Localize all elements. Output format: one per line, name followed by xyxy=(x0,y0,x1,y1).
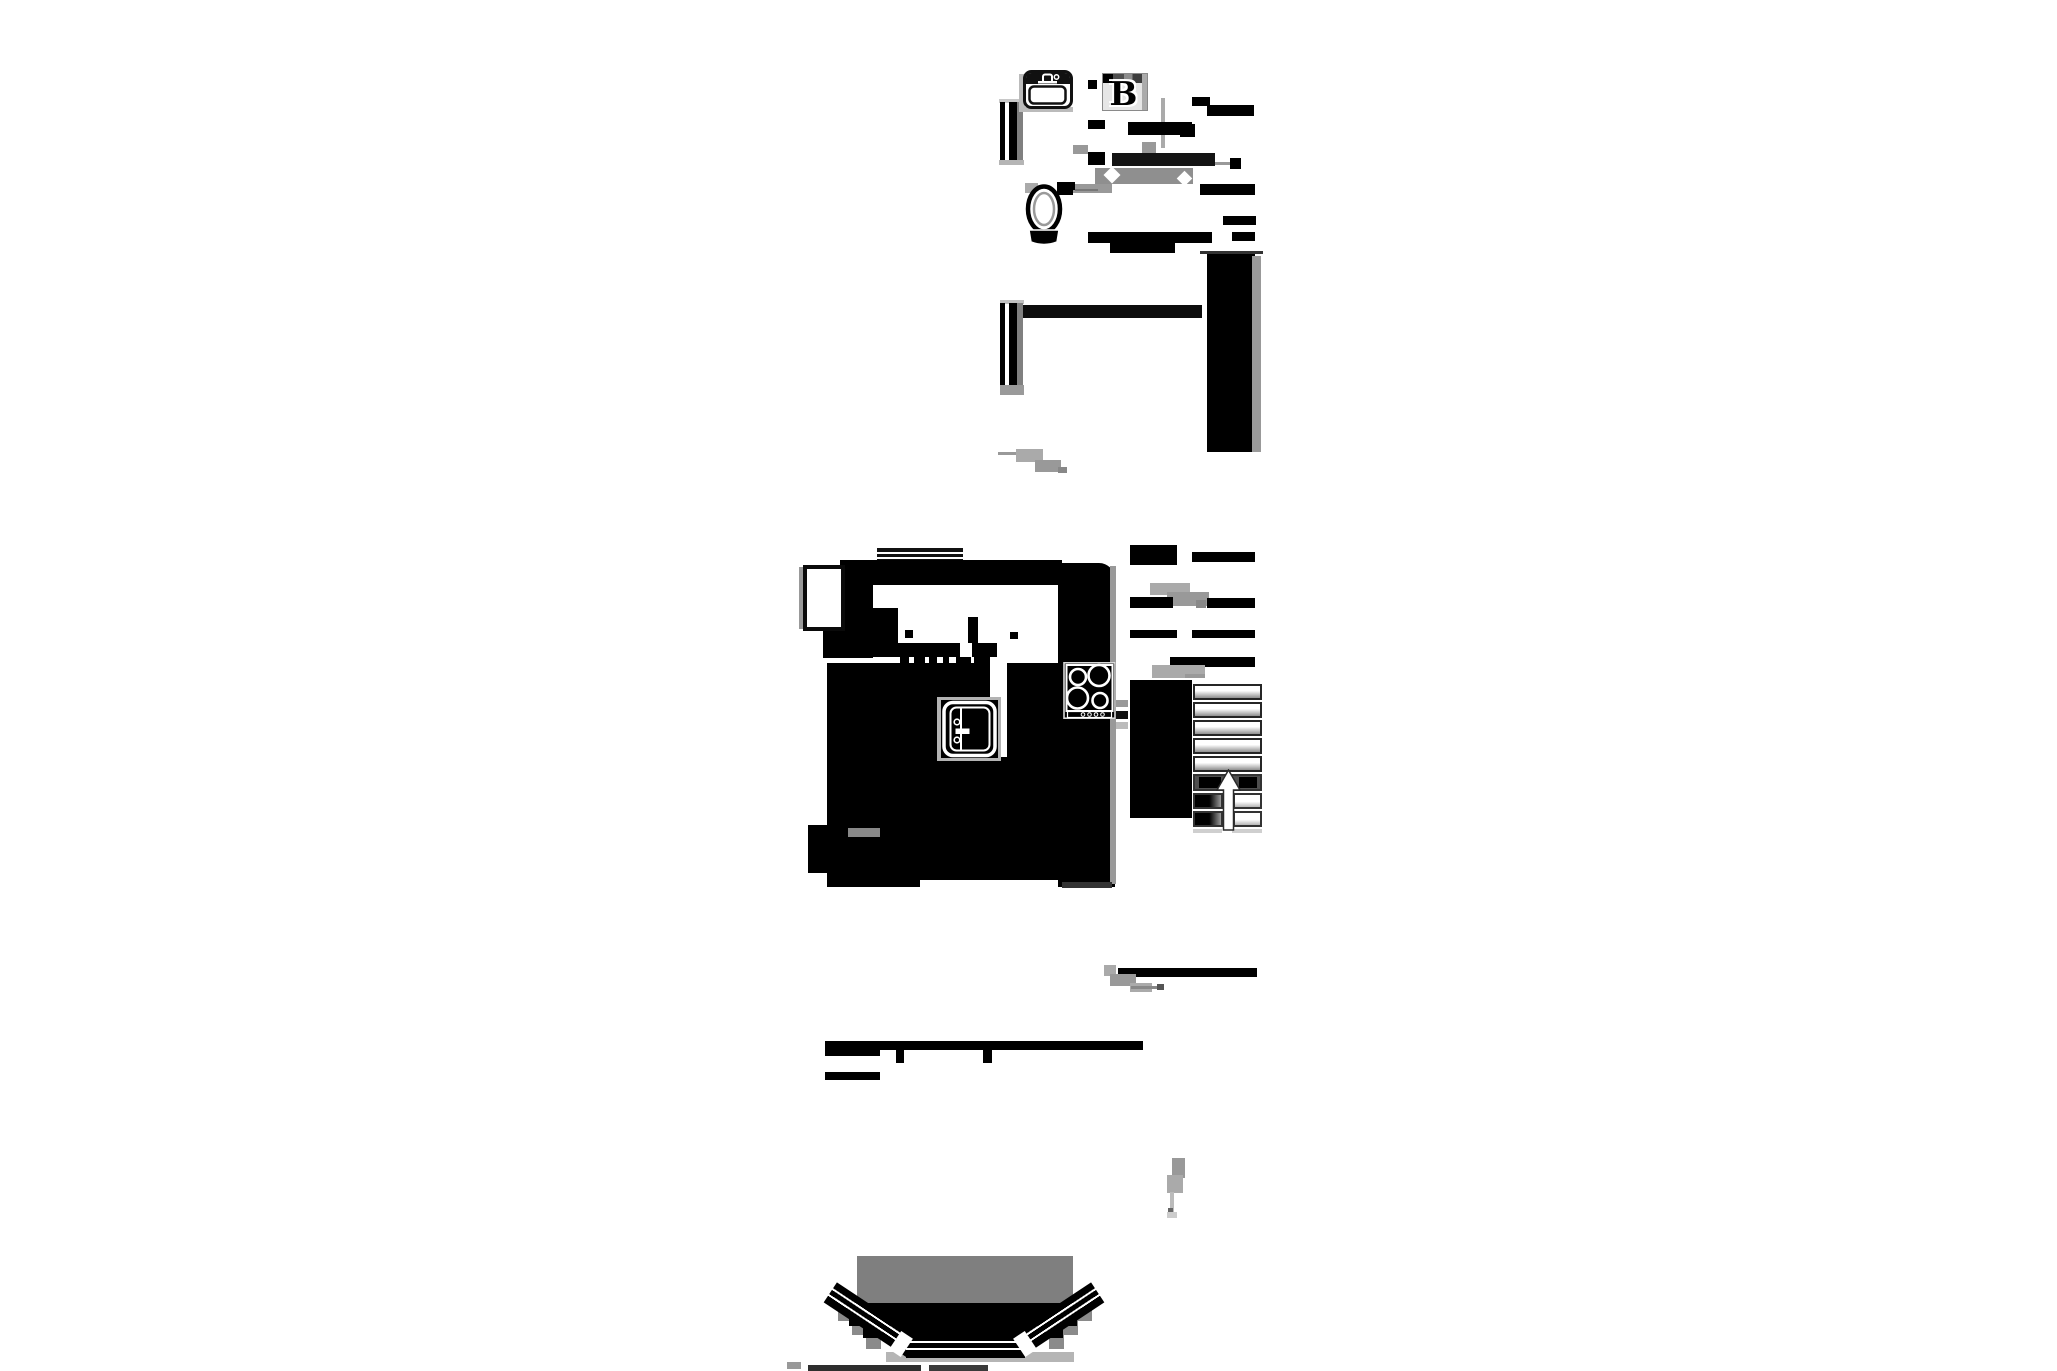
island-step xyxy=(808,825,848,838)
redacted-text-bar xyxy=(1223,216,1256,225)
floor-plan-canvas: B xyxy=(0,0,2057,1371)
island-block xyxy=(1007,663,1058,880)
redacted-mark xyxy=(1088,80,1097,89)
redacted-text-bar xyxy=(1192,552,1255,562)
redacted-text-bar xyxy=(1207,105,1254,116)
label-blob xyxy=(1010,632,1018,639)
leader-line xyxy=(1075,189,1098,191)
label-blob xyxy=(905,630,913,638)
island-step xyxy=(808,838,847,873)
small-mark xyxy=(1116,700,1128,707)
bay-floor xyxy=(857,1256,1073,1306)
wall-segment xyxy=(1009,102,1017,160)
stair-tread xyxy=(1193,720,1262,736)
stair-tread xyxy=(1193,684,1262,700)
small-mark xyxy=(1116,711,1128,719)
small-mark xyxy=(1116,722,1128,729)
redacted-text-bar xyxy=(1112,153,1215,166)
redacted-mark xyxy=(1230,158,1241,169)
redacted-text-bar xyxy=(1180,124,1195,137)
wall-segment xyxy=(1000,303,1005,385)
edge-dash xyxy=(787,1362,801,1369)
cooktop-icon xyxy=(1063,662,1116,719)
b-logo-icon: B xyxy=(1102,73,1148,111)
cooktop-glyph xyxy=(1063,662,1116,719)
wall-cap xyxy=(999,160,1024,165)
redacted-text-bar xyxy=(1088,120,1105,129)
stair-tread xyxy=(1193,702,1262,718)
redacted-text-bar xyxy=(1130,597,1173,608)
title-descender xyxy=(983,1048,992,1063)
b-logo-letter: B xyxy=(1103,77,1144,110)
label-blob xyxy=(968,617,978,643)
stairs-top-mark xyxy=(1185,674,1205,678)
leader-tip xyxy=(1157,984,1164,990)
stair-tread-dark xyxy=(1239,777,1257,788)
title-descender xyxy=(896,1048,904,1063)
redacted-text-bar xyxy=(1118,968,1257,977)
island-step-fade xyxy=(848,828,880,837)
leader-mark xyxy=(1196,600,1206,608)
title-text-bar xyxy=(825,1050,880,1056)
cabinet-outline xyxy=(803,565,845,631)
wall-segment xyxy=(1000,102,1005,160)
leader-mark xyxy=(1073,145,1088,154)
edge-dash xyxy=(929,1365,988,1371)
wall-bar xyxy=(1023,305,1202,318)
bottom-band xyxy=(847,850,1057,878)
edge-dash xyxy=(808,1365,921,1371)
redacted-text-bar xyxy=(1207,598,1255,608)
ghost-mark xyxy=(1167,1212,1177,1218)
bathroom-sink-glyph xyxy=(1023,70,1073,110)
redacted-text-bar xyxy=(1200,184,1255,195)
toilet-glyph xyxy=(1023,184,1065,246)
wall-cap xyxy=(1000,385,1024,395)
redacted-mark xyxy=(1088,152,1105,165)
counter-top-strip xyxy=(840,560,1062,585)
redacted-text-bar xyxy=(1130,630,1177,638)
redacted-text-bar xyxy=(1110,241,1175,253)
wall-segment xyxy=(1009,303,1017,385)
stair-tread xyxy=(1193,738,1262,754)
kitchen-sink-glyph xyxy=(941,700,998,758)
stairs-up-arrow-glyph xyxy=(1216,769,1241,831)
ghost-mark xyxy=(1167,1175,1183,1193)
stairs-up-arrow-icon xyxy=(1216,769,1241,831)
bathroom-sink-icon xyxy=(1023,70,1073,110)
kitchen-sink-icon xyxy=(941,700,998,758)
stairs-side-mass xyxy=(1130,680,1192,818)
door-panel xyxy=(1207,254,1255,452)
label-blob xyxy=(873,608,898,643)
door-panel-shadow xyxy=(1252,256,1261,452)
leader-arrowhead xyxy=(1142,142,1156,153)
tall-cabinet-base xyxy=(1062,882,1112,888)
toilet-icon xyxy=(1023,184,1065,246)
subtitle-text-bar xyxy=(825,1072,880,1080)
redacted-text-bar xyxy=(1232,232,1255,241)
redacted-text-bar xyxy=(1192,630,1255,638)
tall-cabinet xyxy=(1058,563,1115,887)
redacted-text-bar xyxy=(1130,545,1177,565)
door-swing-mark xyxy=(1058,467,1067,473)
bay-window-band xyxy=(906,1334,1025,1358)
label-blob xyxy=(972,643,997,657)
label-blob xyxy=(860,643,960,657)
